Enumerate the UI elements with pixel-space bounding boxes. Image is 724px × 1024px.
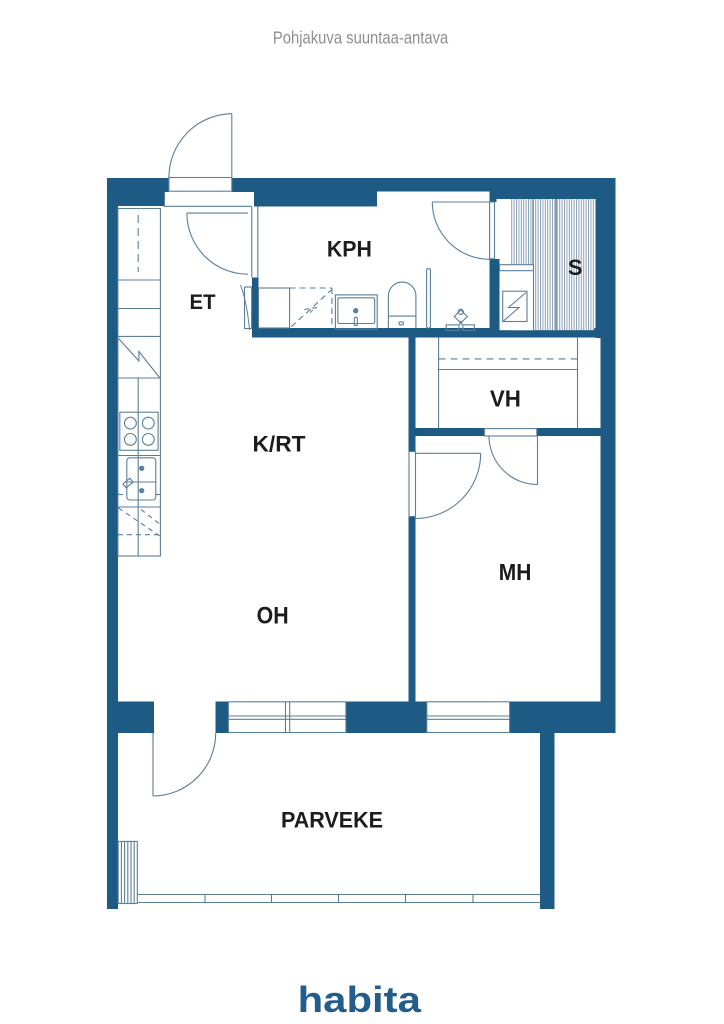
svg-text:Pohjakuva suuntaa-antava: Pohjakuva suuntaa-antava bbox=[273, 28, 449, 48]
svg-text:PARVEKE: PARVEKE bbox=[281, 807, 383, 832]
svg-text:ET: ET bbox=[190, 291, 216, 314]
svg-text:S: S bbox=[568, 255, 583, 280]
svg-text:KPH: KPH bbox=[327, 237, 372, 262]
svg-text:K/RT: K/RT bbox=[253, 432, 307, 457]
svg-text:MH: MH bbox=[499, 559, 532, 585]
svg-text:OH: OH bbox=[257, 603, 289, 630]
svg-text:VH: VH bbox=[490, 386, 521, 412]
svg-text:habita: habita bbox=[298, 979, 422, 1020]
